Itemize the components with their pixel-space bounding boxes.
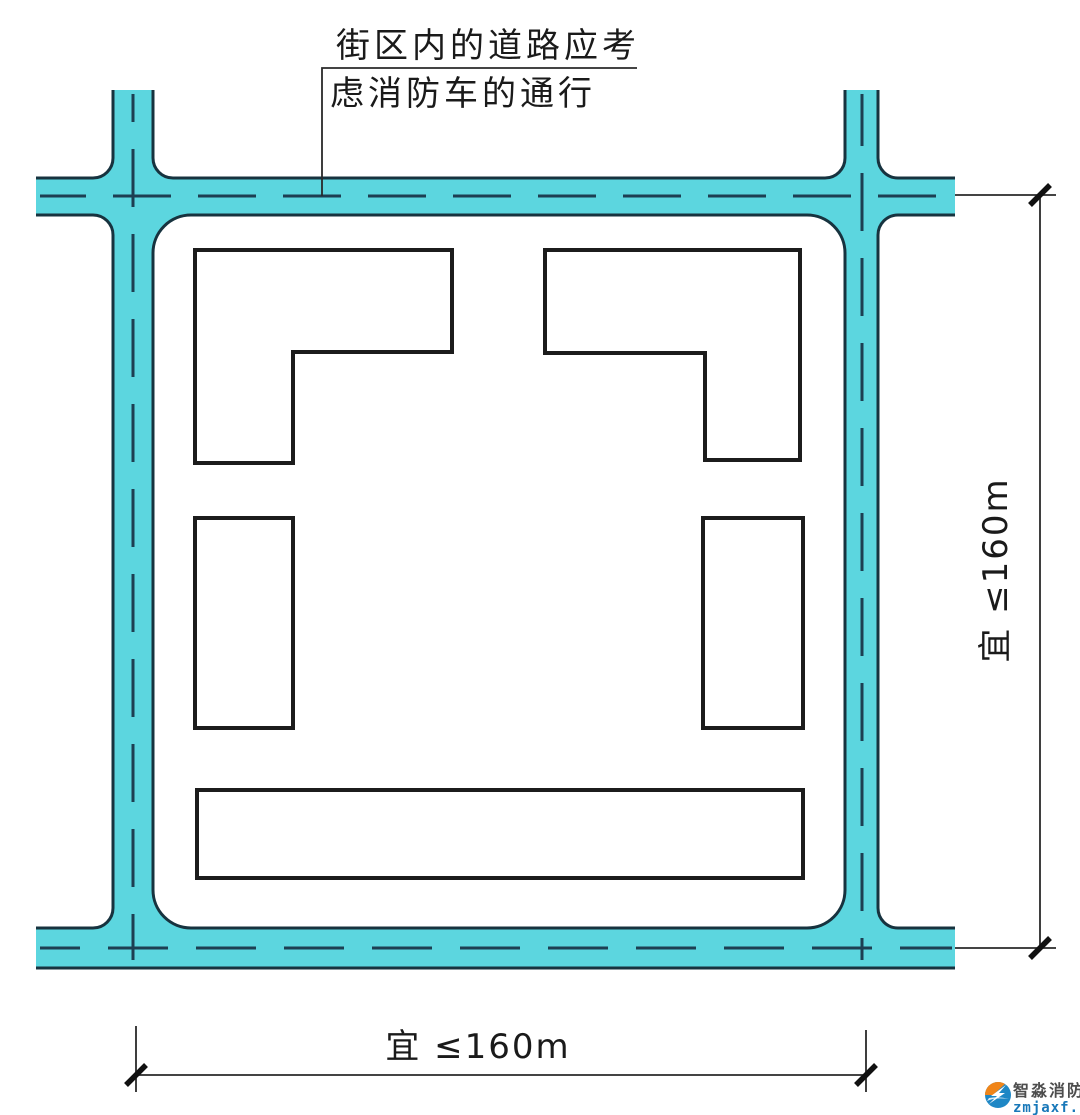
dimension-right: 宜 ≤160m <box>955 185 1056 958</box>
buildings <box>195 250 803 878</box>
dimension-right-label: 宜 ≤160m <box>976 477 1016 662</box>
building-l-shape-left <box>195 250 452 463</box>
watermark-domain: zmjaxf.com <box>1013 1100 1080 1115</box>
diagram-canvas: 街区内的道路应考 虑消防车的通行 宜 ≤160m 宜 ≤160m 智淼消防 zm… <box>0 0 1080 1115</box>
dimension-bottom: 宜 ≤160m <box>126 1026 876 1092</box>
callout-text-line1: 街区内的道路应考 <box>336 26 640 66</box>
fire-access-block-diagram: 街区内的道路应考 虑消防车的通行 宜 ≤160m 宜 ≤160m 智淼消防 zm… <box>0 0 1080 1115</box>
callout-text-line2: 虑消防车的通行 <box>330 74 596 114</box>
callout-note: 街区内的道路应考 虑消防车的通行 <box>322 26 640 196</box>
watermark-name: 智淼消防 <box>1013 1081 1080 1100</box>
building-rect-middle-right <box>703 518 803 728</box>
building-l-shape-right <box>545 250 800 460</box>
building-rect-bottom <box>197 790 803 878</box>
watermark-logo-icon <box>985 1082 1011 1108</box>
dimension-bottom-label: 宜 ≤160m <box>385 1027 570 1067</box>
building-rect-middle-left <box>195 518 293 728</box>
watermark: 智淼消防 zmjaxf.com <box>985 1081 1080 1115</box>
